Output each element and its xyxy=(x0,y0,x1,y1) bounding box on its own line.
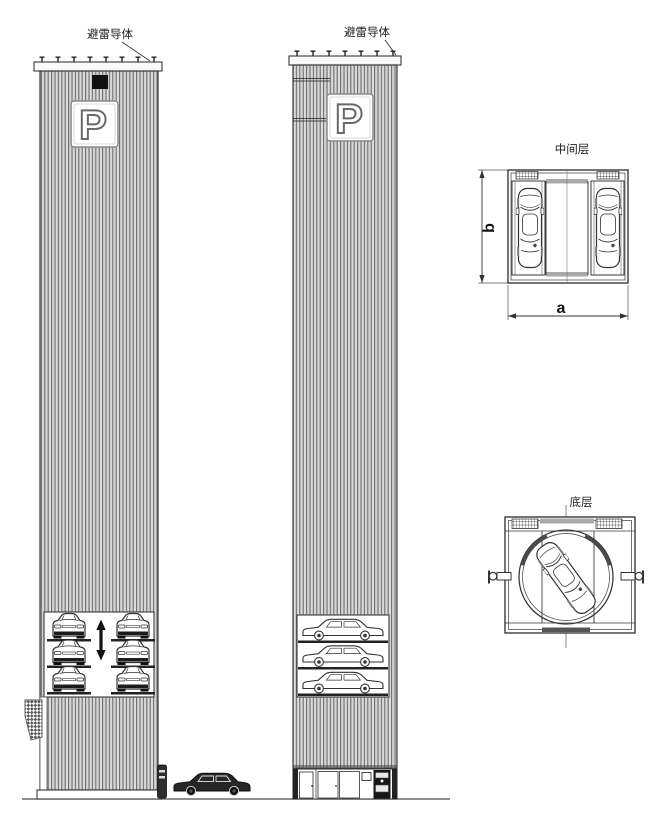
leader-line-front xyxy=(122,42,150,61)
lightning-label-front: 避雷导体 xyxy=(87,27,133,41)
parking-sign-side: P xyxy=(327,94,373,142)
car-top-view xyxy=(594,189,622,268)
lightning-terminals-front xyxy=(40,57,157,62)
car-shelf xyxy=(298,667,388,670)
vent-grille xyxy=(512,519,538,529)
machinery-unit xyxy=(374,770,391,799)
corner-post xyxy=(392,769,397,799)
threshold-strip xyxy=(542,628,590,633)
car-top-view xyxy=(516,189,544,268)
bottom-floor-title: 底层 xyxy=(570,495,593,509)
car-shelf xyxy=(47,692,91,695)
bollard xyxy=(158,765,167,798)
middle-floor-title: 中间层 xyxy=(555,143,590,156)
lift-cutaway-front xyxy=(44,612,155,697)
car-shelf xyxy=(111,692,155,695)
front-elevation: 避雷导体 P xyxy=(25,27,167,799)
tower-parking-diagram: 避雷导体 P xyxy=(0,0,655,819)
parking-sign-letter-side: P xyxy=(335,95,363,142)
entrance-door xyxy=(300,772,314,798)
parking-sign-front: P xyxy=(71,101,118,148)
street-car xyxy=(174,773,250,795)
bottom-floor-plan: 底层 xyxy=(489,495,643,648)
roof-cap-front xyxy=(34,62,162,71)
dimension-b-label: b xyxy=(481,223,498,233)
base-plinth-front xyxy=(37,790,161,799)
vent-grille xyxy=(596,519,622,529)
hatched-annex xyxy=(25,700,42,740)
control-box xyxy=(362,773,371,781)
dimension-a: a xyxy=(508,285,628,320)
lightning-terminals-side xyxy=(295,51,396,56)
roof-cap-side xyxy=(289,56,401,65)
gray-strip xyxy=(540,519,594,524)
entrance-door xyxy=(318,772,338,799)
vent-grille xyxy=(516,172,538,180)
middle-floor-plan: 中间层 b xyxy=(478,143,628,320)
parking-sign-letter-front: P xyxy=(79,101,107,148)
diagram-svg: 避雷导体 P xyxy=(0,0,655,819)
car-shelf xyxy=(298,694,388,697)
entrance-level xyxy=(293,766,397,799)
dimension-a-label: a xyxy=(557,300,566,317)
rooftop-vent-panel xyxy=(92,75,108,89)
lightning-label-side: 避雷导体 xyxy=(344,25,390,39)
vent-grille xyxy=(597,172,619,180)
car-shelf xyxy=(298,641,388,644)
entrance-door xyxy=(340,772,360,799)
corner-post xyxy=(293,769,298,799)
side-elevation: 避雷导体 P xyxy=(289,25,401,799)
leader-line-side xyxy=(385,40,396,55)
dimension-b: b xyxy=(478,170,508,283)
lift-cutaway-side xyxy=(297,615,389,697)
